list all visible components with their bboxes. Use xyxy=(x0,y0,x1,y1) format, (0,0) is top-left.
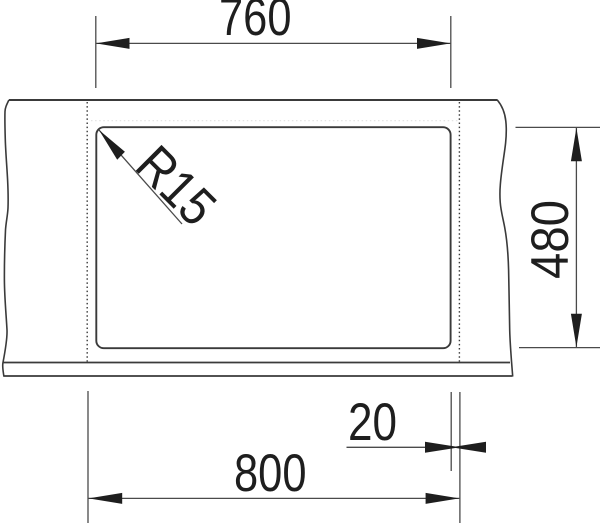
svg-text:480: 480 xyxy=(521,200,580,279)
svg-text:20: 20 xyxy=(348,393,397,452)
svg-text:760: 760 xyxy=(219,0,292,47)
svg-text:800: 800 xyxy=(234,444,307,503)
